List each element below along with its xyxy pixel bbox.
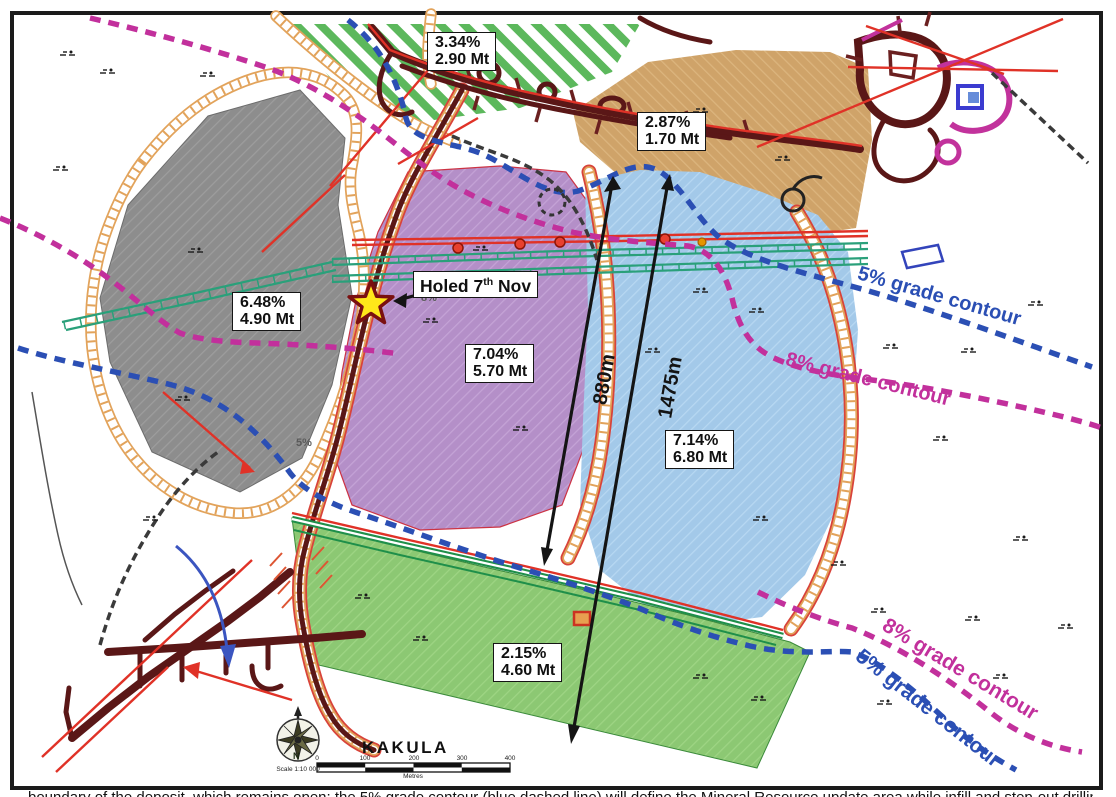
scale-tick-0: 0 xyxy=(308,755,326,762)
tonnage-value: 5.70 Mt xyxy=(473,363,527,380)
scale-text: Scale 1:10 000 xyxy=(268,766,328,773)
grade-value: 2.15% xyxy=(501,645,555,662)
tonnage-value: 6.80 Mt xyxy=(673,449,727,466)
scale-unit-label: Metres xyxy=(393,773,433,780)
scale-tick-400: 400 xyxy=(501,755,519,762)
kakula-mine-map: .lad1{stroke:#d8433a;stroke-width:15;fil… xyxy=(0,0,1116,797)
scale-bar xyxy=(317,763,510,772)
grade-label-south: 2.15% 4.60 Mt xyxy=(493,643,562,682)
tonnage-value: 4.90 Mt xyxy=(240,311,294,328)
figure-caption-clipped: boundary of the deposit, which remains o… xyxy=(28,789,1093,797)
tonnage-value: 1.70 Mt xyxy=(645,131,699,148)
grade-value: 2.87% xyxy=(645,114,699,131)
holed-superscript: th xyxy=(483,276,493,288)
grade-value: 7.04% xyxy=(473,346,527,363)
grade-label-east: 7.14% 6.80 Mt xyxy=(665,430,734,469)
grade-label-north: 3.34% 2.90 Mt xyxy=(427,32,496,71)
holed-label: Holed 7th Nov xyxy=(413,271,538,298)
spot-grade-5pct: 5% xyxy=(296,437,312,449)
holed-text: Holed 7 xyxy=(420,276,483,296)
grade-value: 3.34% xyxy=(435,34,489,51)
holed-text-suffix: Nov xyxy=(493,276,531,296)
scale-tick-300: 300 xyxy=(453,755,471,762)
grade-label-northeast: 2.87% 1.70 Mt xyxy=(637,112,706,151)
tonnage-value: 2.90 Mt xyxy=(435,51,489,68)
north-label: N xyxy=(293,751,300,761)
tonnage-value: 4.60 Mt xyxy=(501,662,555,679)
grade-value: 6.48% xyxy=(240,294,294,311)
grade-label-central: 7.04% 5.70 Mt xyxy=(465,344,534,383)
scale-tick-200: 200 xyxy=(405,755,423,762)
grade-value: 7.14% xyxy=(673,432,727,449)
scale-tick-100: 100 xyxy=(356,755,374,762)
grade-label-west: 6.48% 4.90 Mt xyxy=(232,292,301,331)
